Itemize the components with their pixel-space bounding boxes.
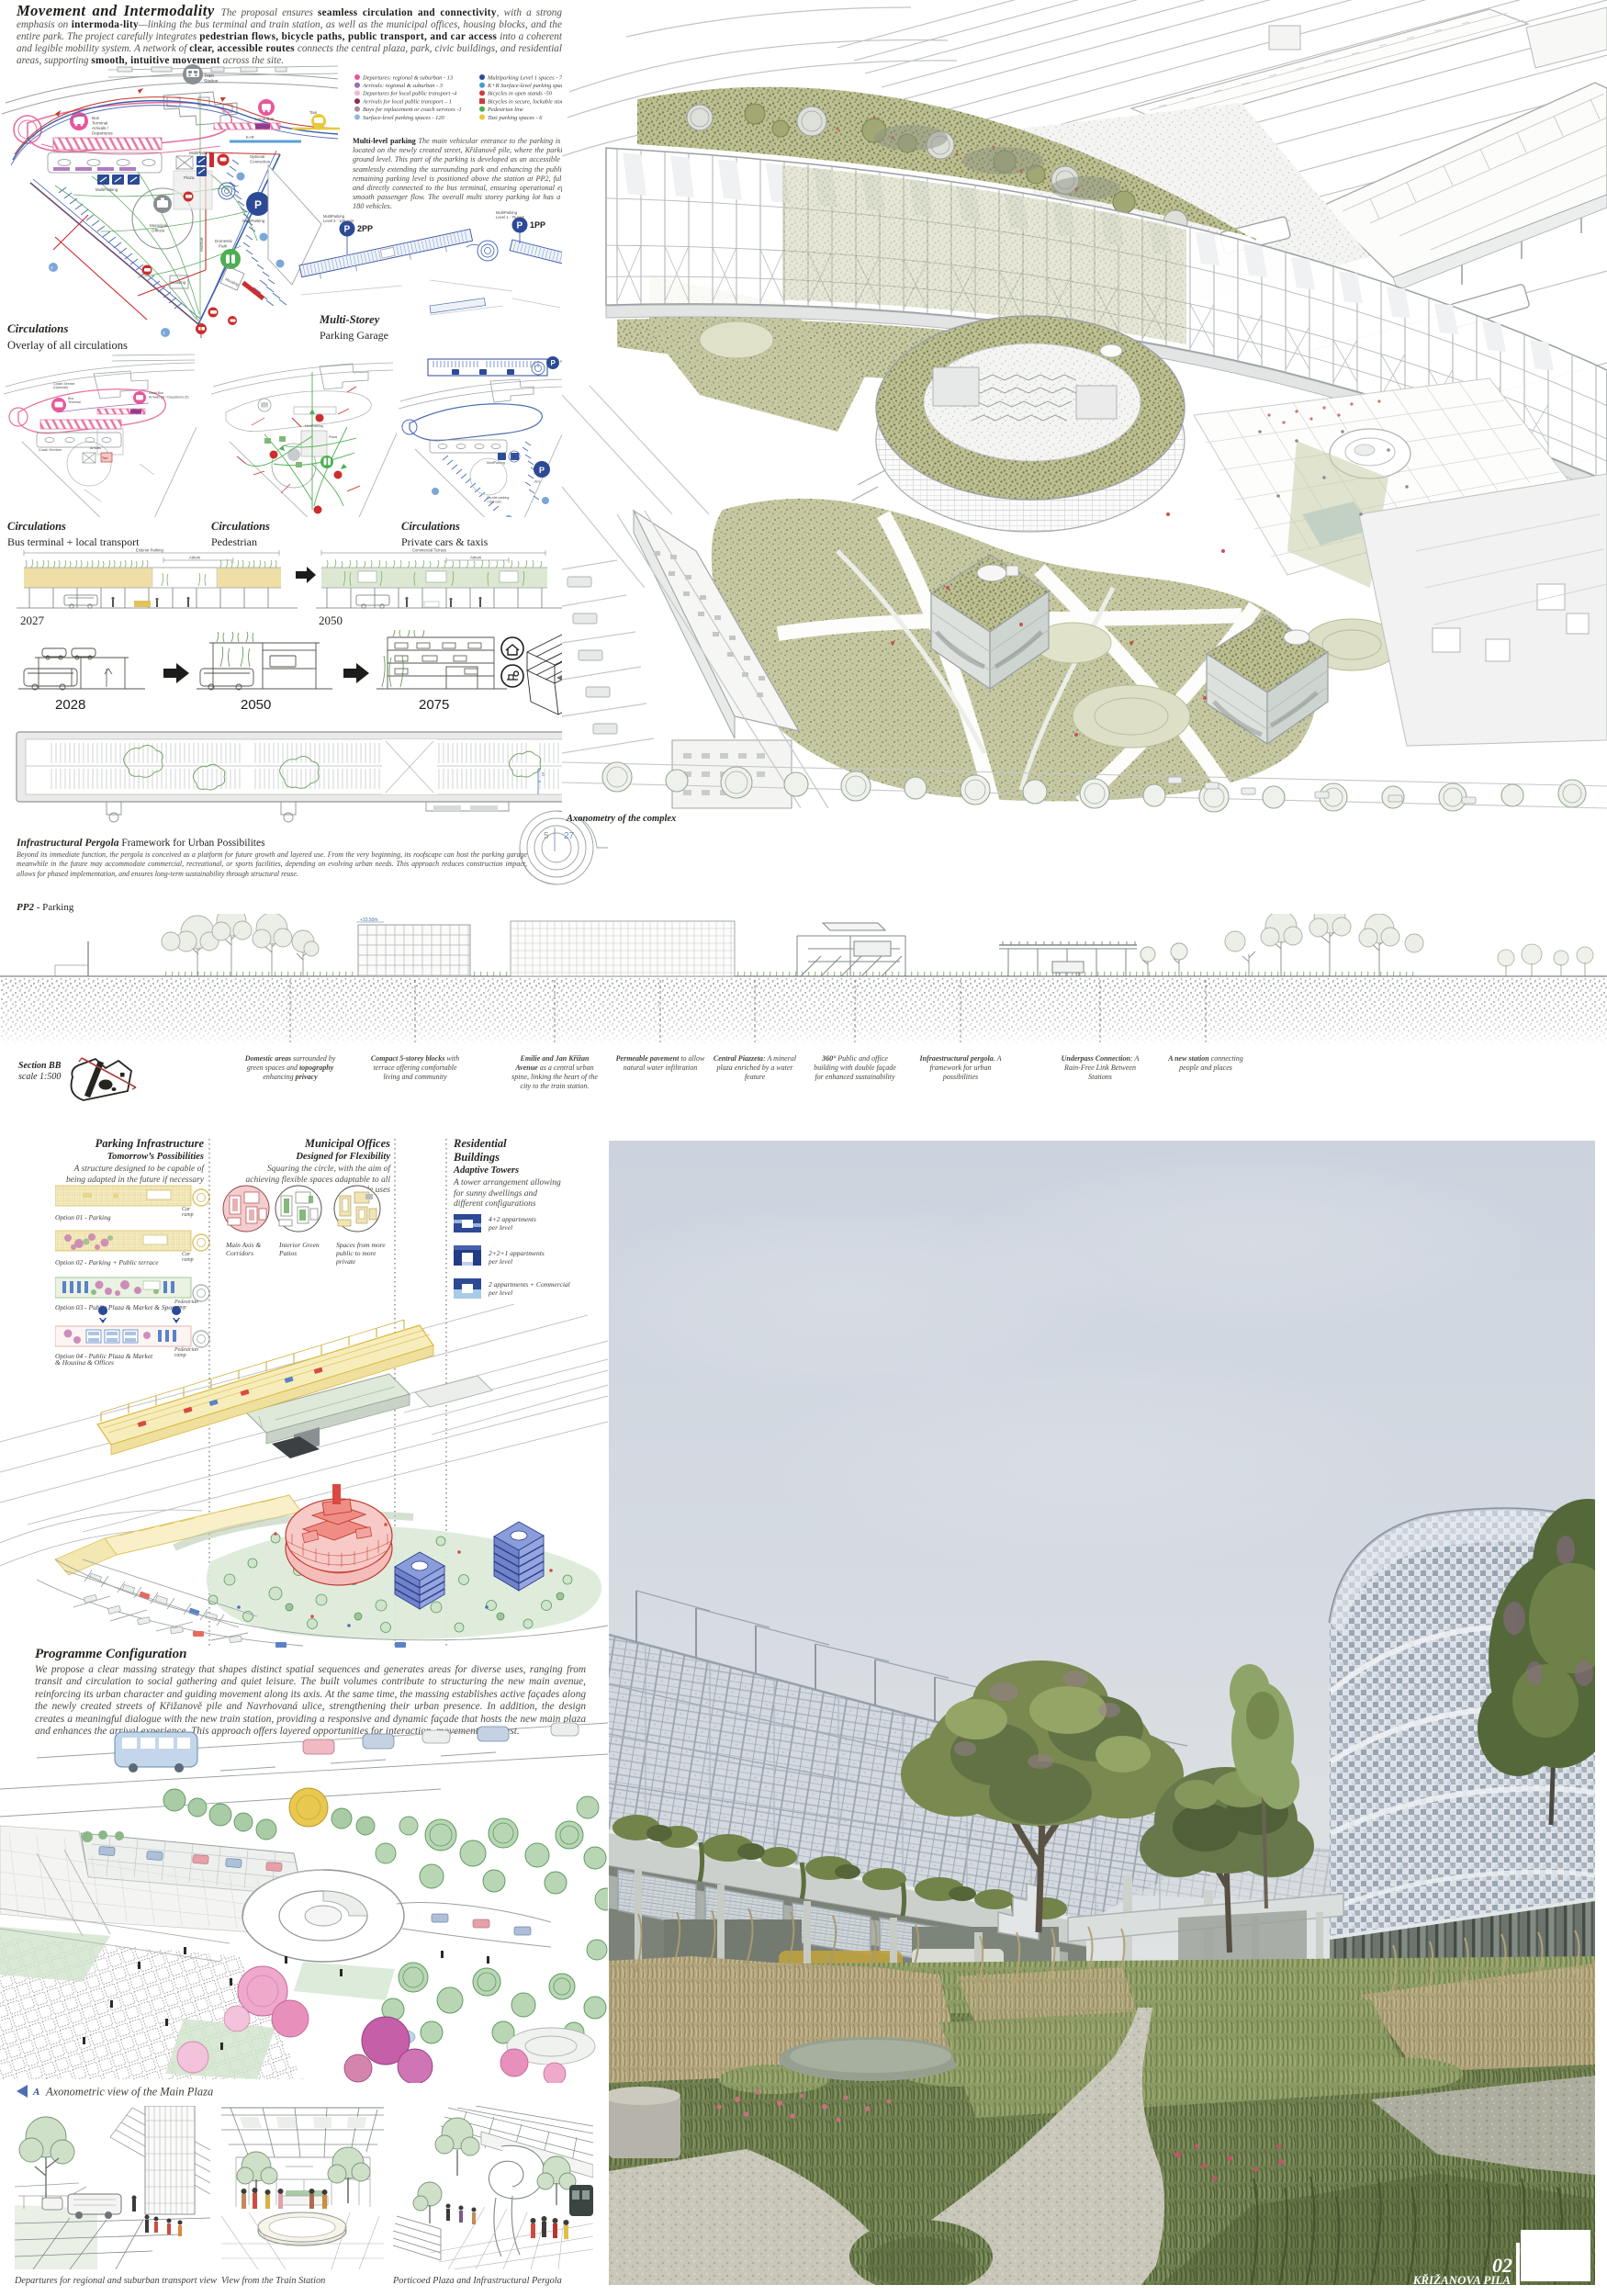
svg-text:Departures: regional & suburba: Departures: regional & suburban - 13 [362,74,453,81]
svg-text:On-site parking: On-site parking [487,496,509,500]
svg-text:Taxi parking spaces - 6: Taxi parking spaces - 6 [488,115,543,121]
svg-text:Local Bus: Local Bus [149,391,163,395]
svg-text:5: 5 [544,831,549,841]
svg-text:Terminal: Terminal [92,121,107,126]
svg-text:MultiParking: MultiParking [305,424,323,428]
svg-text:MultiParking: MultiParking [242,219,265,223]
svg-text:Station: Station [204,79,219,84]
svg-text:Surface-level parking spaces -: Surface-level parking spaces - 120 [363,115,445,121]
svg-text:Coach Services: Coach Services [39,448,62,452]
svg-text:Park: Park [219,244,228,249]
svg-text:(Optional): (Optional) [53,386,68,389]
svg-text:Taxi: Taxi [309,110,317,115]
svg-text:A: A [32,2087,39,2098]
svg-text:P: P [539,466,545,475]
svg-text:P: P [344,225,351,235]
svg-text:5: 5 [542,772,545,778]
svg-text:Local Bus: Local Bus [255,117,275,121]
svg-text:27: 27 [564,831,575,841]
svg-text:Arrivals /: Arrivals / [92,126,109,130]
svg-text:Atrium: Atrium [470,556,482,560]
svg-text:Housing: Housing [171,280,186,285]
svg-text:P: P [254,198,262,211]
svg-text:Arrivals for local public tran: Arrivals for local public transport – 1 [362,98,452,105]
svg-text:Departures for local public tr: Departures for local public transport -4 [362,91,457,97]
svg-text:⚲: ⚲ [163,331,165,335]
svg-text:Bus: Bus [92,116,100,120]
svg-text:1PP: 1PP [530,220,545,230]
svg-text:Terminal: Terminal [68,400,81,404]
svg-text:Taxi: Taxi [102,456,108,460]
svg-text:Offices: Offices [152,229,165,233]
svg-text:Arrivals: regional & suburban: Arrivals: regional & suburban - 3 [362,83,443,89]
svg-text:P: P [517,221,523,231]
svg-text:2050: 2050 [241,697,271,713]
svg-text:Arrivals: Arrivals [90,446,101,450]
svg-text:Pedestrian line: Pedestrian line [487,107,523,113]
svg-text:P: P [551,359,556,367]
svg-text:Bays for replacement or coach: Bays for replacement or coach services -… [363,107,462,113]
svg-text:Level 1 - 75 cars: Level 1 - 75 cars [496,215,524,219]
svg-text:Plaza: Plaza [184,175,195,180]
svg-text:Departures: Departures [92,131,113,136]
svg-text:⚲: ⚲ [51,265,53,270]
svg-text:2075: 2075 [419,697,449,713]
svg-text:Arrivals (4) / Departures (5): Arrivals (4) / Departures (5) [149,396,189,400]
svg-text:2PP: 2PP [357,224,373,233]
svg-text:Optional: Optional [250,154,264,159]
svg-text:K+R: K+R [246,135,254,140]
svg-text:Plaza: Plaza [329,435,337,439]
svg-text:MultiParking: MultiParking [189,151,212,155]
svg-text:Exterior Parking: Exterior Parking [136,548,163,553]
svg-text:Domestic: Domestic [215,239,233,243]
svg-text:+100 cars: +100 cars [487,501,501,504]
svg-text:Bicycles in open stands -50: Bicycles in open stands -50 [488,91,553,97]
svg-text:Avenue: Avenue [199,237,204,252]
svg-text:2028: 2028 [55,697,85,713]
svg-text:MultiParking: MultiParking [96,187,118,192]
svg-text:Axonometric view of the Main P: Axonometric view of the Main Plaza [45,2086,213,2099]
svg-text:Multiparking Level 1 spaces -: Multiparking Level 1 spaces - 75 [487,74,565,81]
svg-text:PP1: PP1 [534,480,541,484]
svg-text:Municipal: Municipal [150,223,167,228]
svg-text:Commercial Terrace: Commercial Terrace [412,548,447,553]
svg-text:KŘIŽANOVA PILA: KŘIŽANOVA PILA [1412,2273,1511,2285]
svg-text:Connection: Connection [250,160,271,164]
svg-text:Level 2 - 105 cars: Level 2 - 105 cars [323,219,354,223]
svg-text:Atrium: Atrium [189,556,201,560]
